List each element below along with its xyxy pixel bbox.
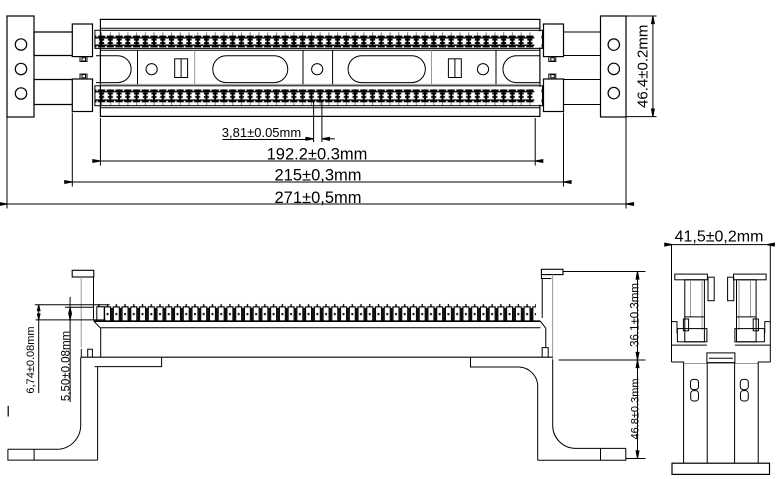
- svg-text:215±0,3mm: 215±0,3mm: [274, 167, 361, 185]
- svg-text:46.8±0.3mm: 46.8±0.3mm: [630, 378, 642, 439]
- svg-text:192.2±0.3mm: 192.2±0.3mm: [267, 146, 368, 164]
- svg-text:41,5±0,2mm: 41,5±0,2mm: [675, 229, 764, 246]
- svg-text:36.1±0.3mm: 36.1±0.3mm: [630, 283, 642, 347]
- svg-text:3,81±0.05mm: 3,81±0.05mm: [222, 125, 301, 140]
- svg-text:5,50±0.08mm: 5,50±0.08mm: [60, 331, 72, 401]
- svg-text:271±0,5mm: 271±0,5mm: [274, 189, 361, 207]
- svg-text:46.4±0.2mm: 46.4±0.2mm: [635, 25, 652, 108]
- svg-text:6,74±0.08mm: 6,74±0.08mm: [25, 326, 37, 393]
